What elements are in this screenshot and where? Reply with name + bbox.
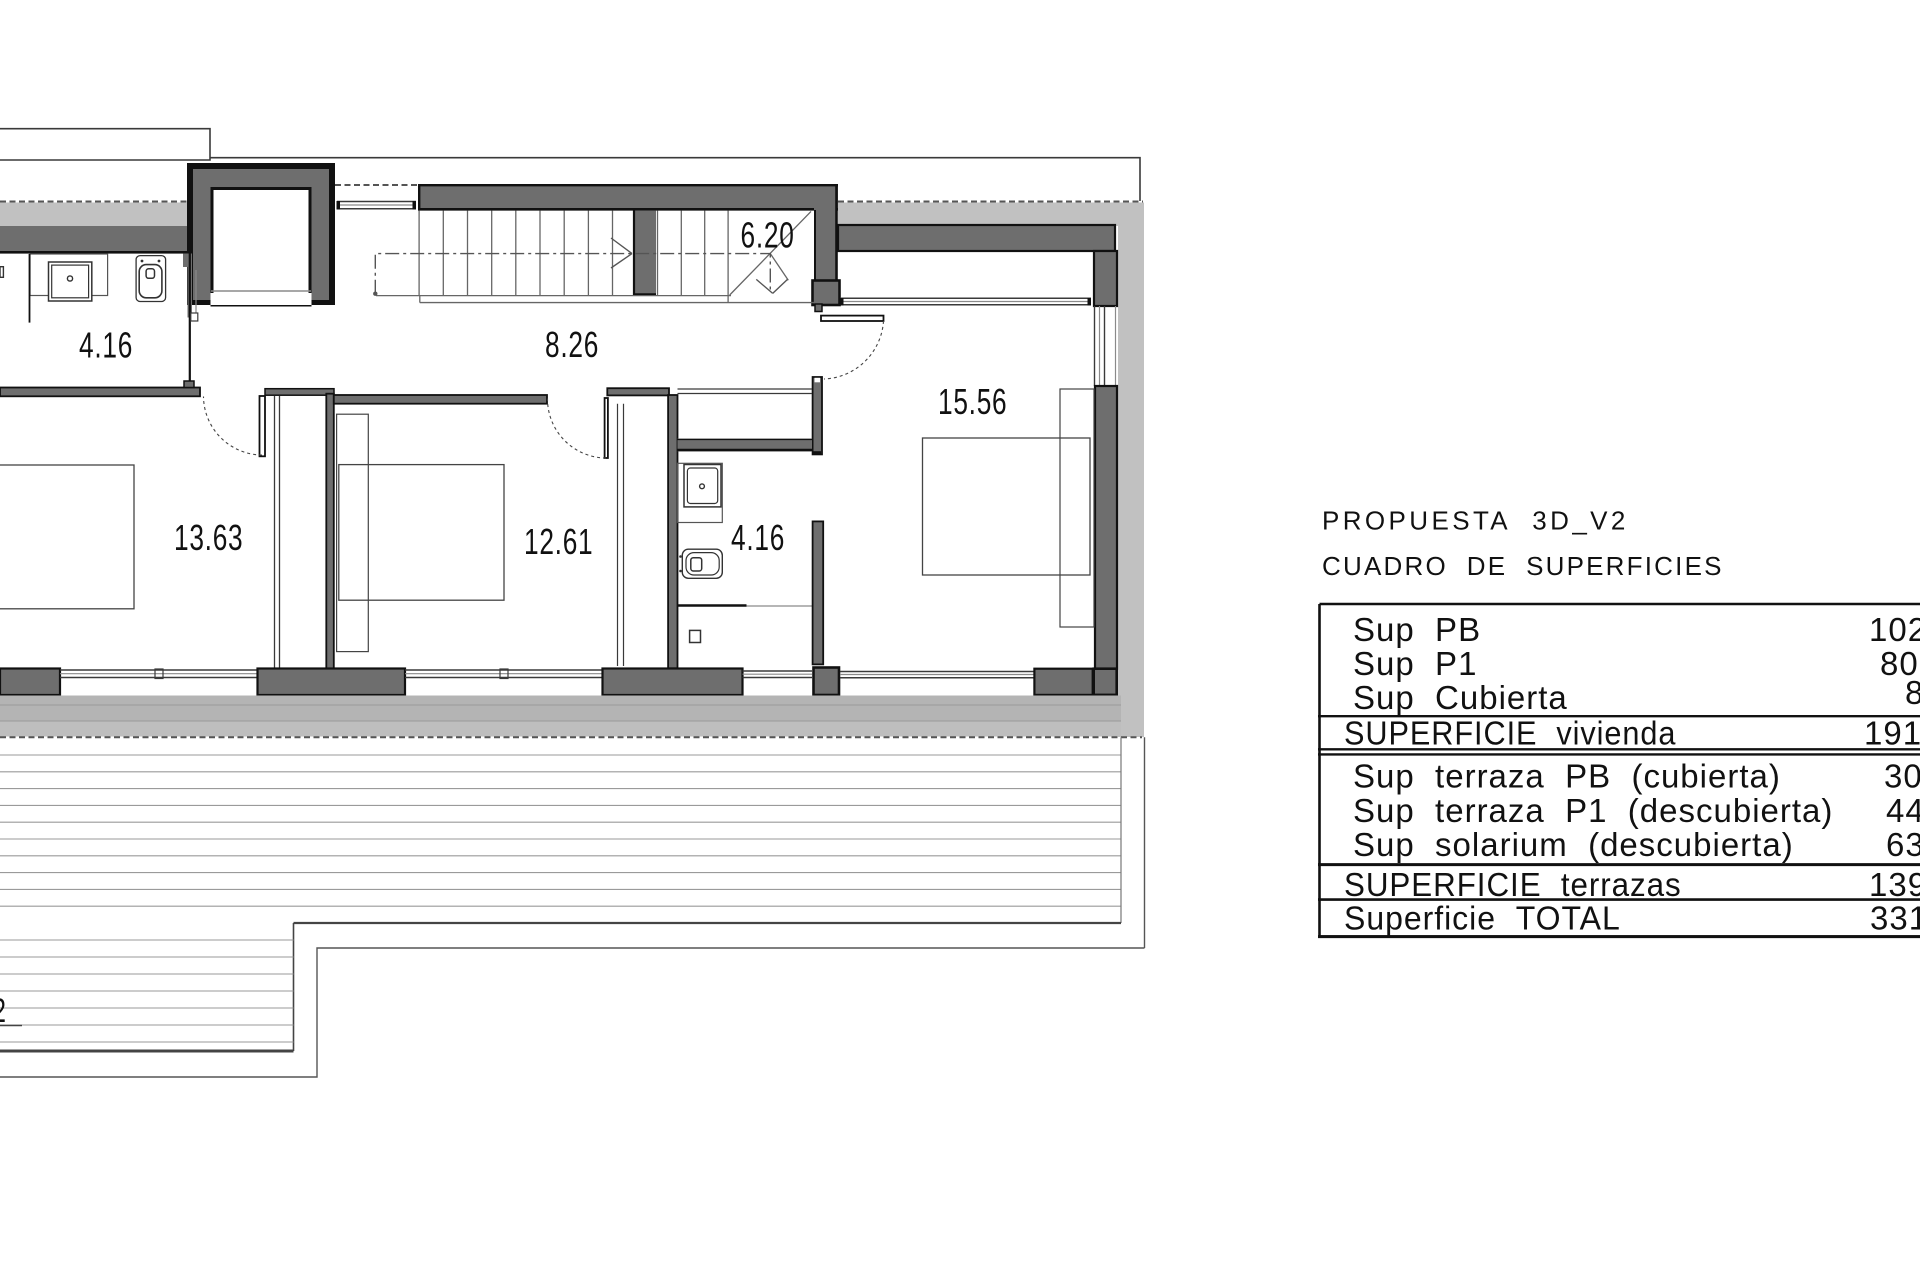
svg-text:13.63: 13.63	[174, 517, 243, 558]
svg-text:63: 63	[1886, 826, 1920, 863]
svg-text:Sup P1: Sup P1	[1353, 645, 1477, 682]
svg-text:CUADRO DE SUPERFICIES: CUADRO DE SUPERFICIES	[1322, 551, 1724, 581]
svg-text:4.16: 4.16	[79, 324, 133, 365]
svg-text:Sup Cubierta: Sup Cubierta	[1353, 679, 1568, 716]
svg-text:SUPERFICIE terrazas: SUPERFICIE terrazas	[1344, 866, 1682, 903]
svg-text:12.61: 12.61	[524, 521, 593, 562]
svg-text:8: 8	[1905, 674, 1920, 711]
svg-text:Sup terraza PB (cubierta): Sup terraza PB (cubierta)	[1353, 758, 1781, 795]
svg-text:331: 331	[1870, 900, 1920, 937]
svg-text:2: 2	[0, 992, 7, 1030]
svg-text:6.20: 6.20	[741, 214, 795, 255]
svg-text:SUPERFICIE vivienda: SUPERFICIE vivienda	[1344, 714, 1676, 751]
svg-text:102: 102	[1869, 611, 1920, 648]
svg-text:Superficie TOTAL: Superficie TOTAL	[1344, 900, 1621, 937]
svg-text:Sup solarium (descubierta): Sup solarium (descubierta)	[1353, 826, 1794, 863]
svg-text:44: 44	[1886, 792, 1920, 829]
svg-text:139: 139	[1869, 866, 1920, 903]
svg-text:8.26: 8.26	[545, 324, 599, 365]
svg-text:15.56: 15.56	[938, 381, 1007, 422]
svg-text:4.16: 4.16	[731, 517, 785, 558]
svg-text:30: 30	[1884, 758, 1920, 795]
svg-text:Sup terraza P1 (descubierta: Sup terraza P1 (descubierta)	[1353, 792, 1833, 829]
svg-text:Sup PB: Sup PB	[1353, 611, 1481, 648]
svg-text:191: 191	[1864, 715, 1920, 752]
svg-text:PROPUESTA 3D_V2: PROPUESTA 3D_V2	[1322, 506, 1629, 536]
